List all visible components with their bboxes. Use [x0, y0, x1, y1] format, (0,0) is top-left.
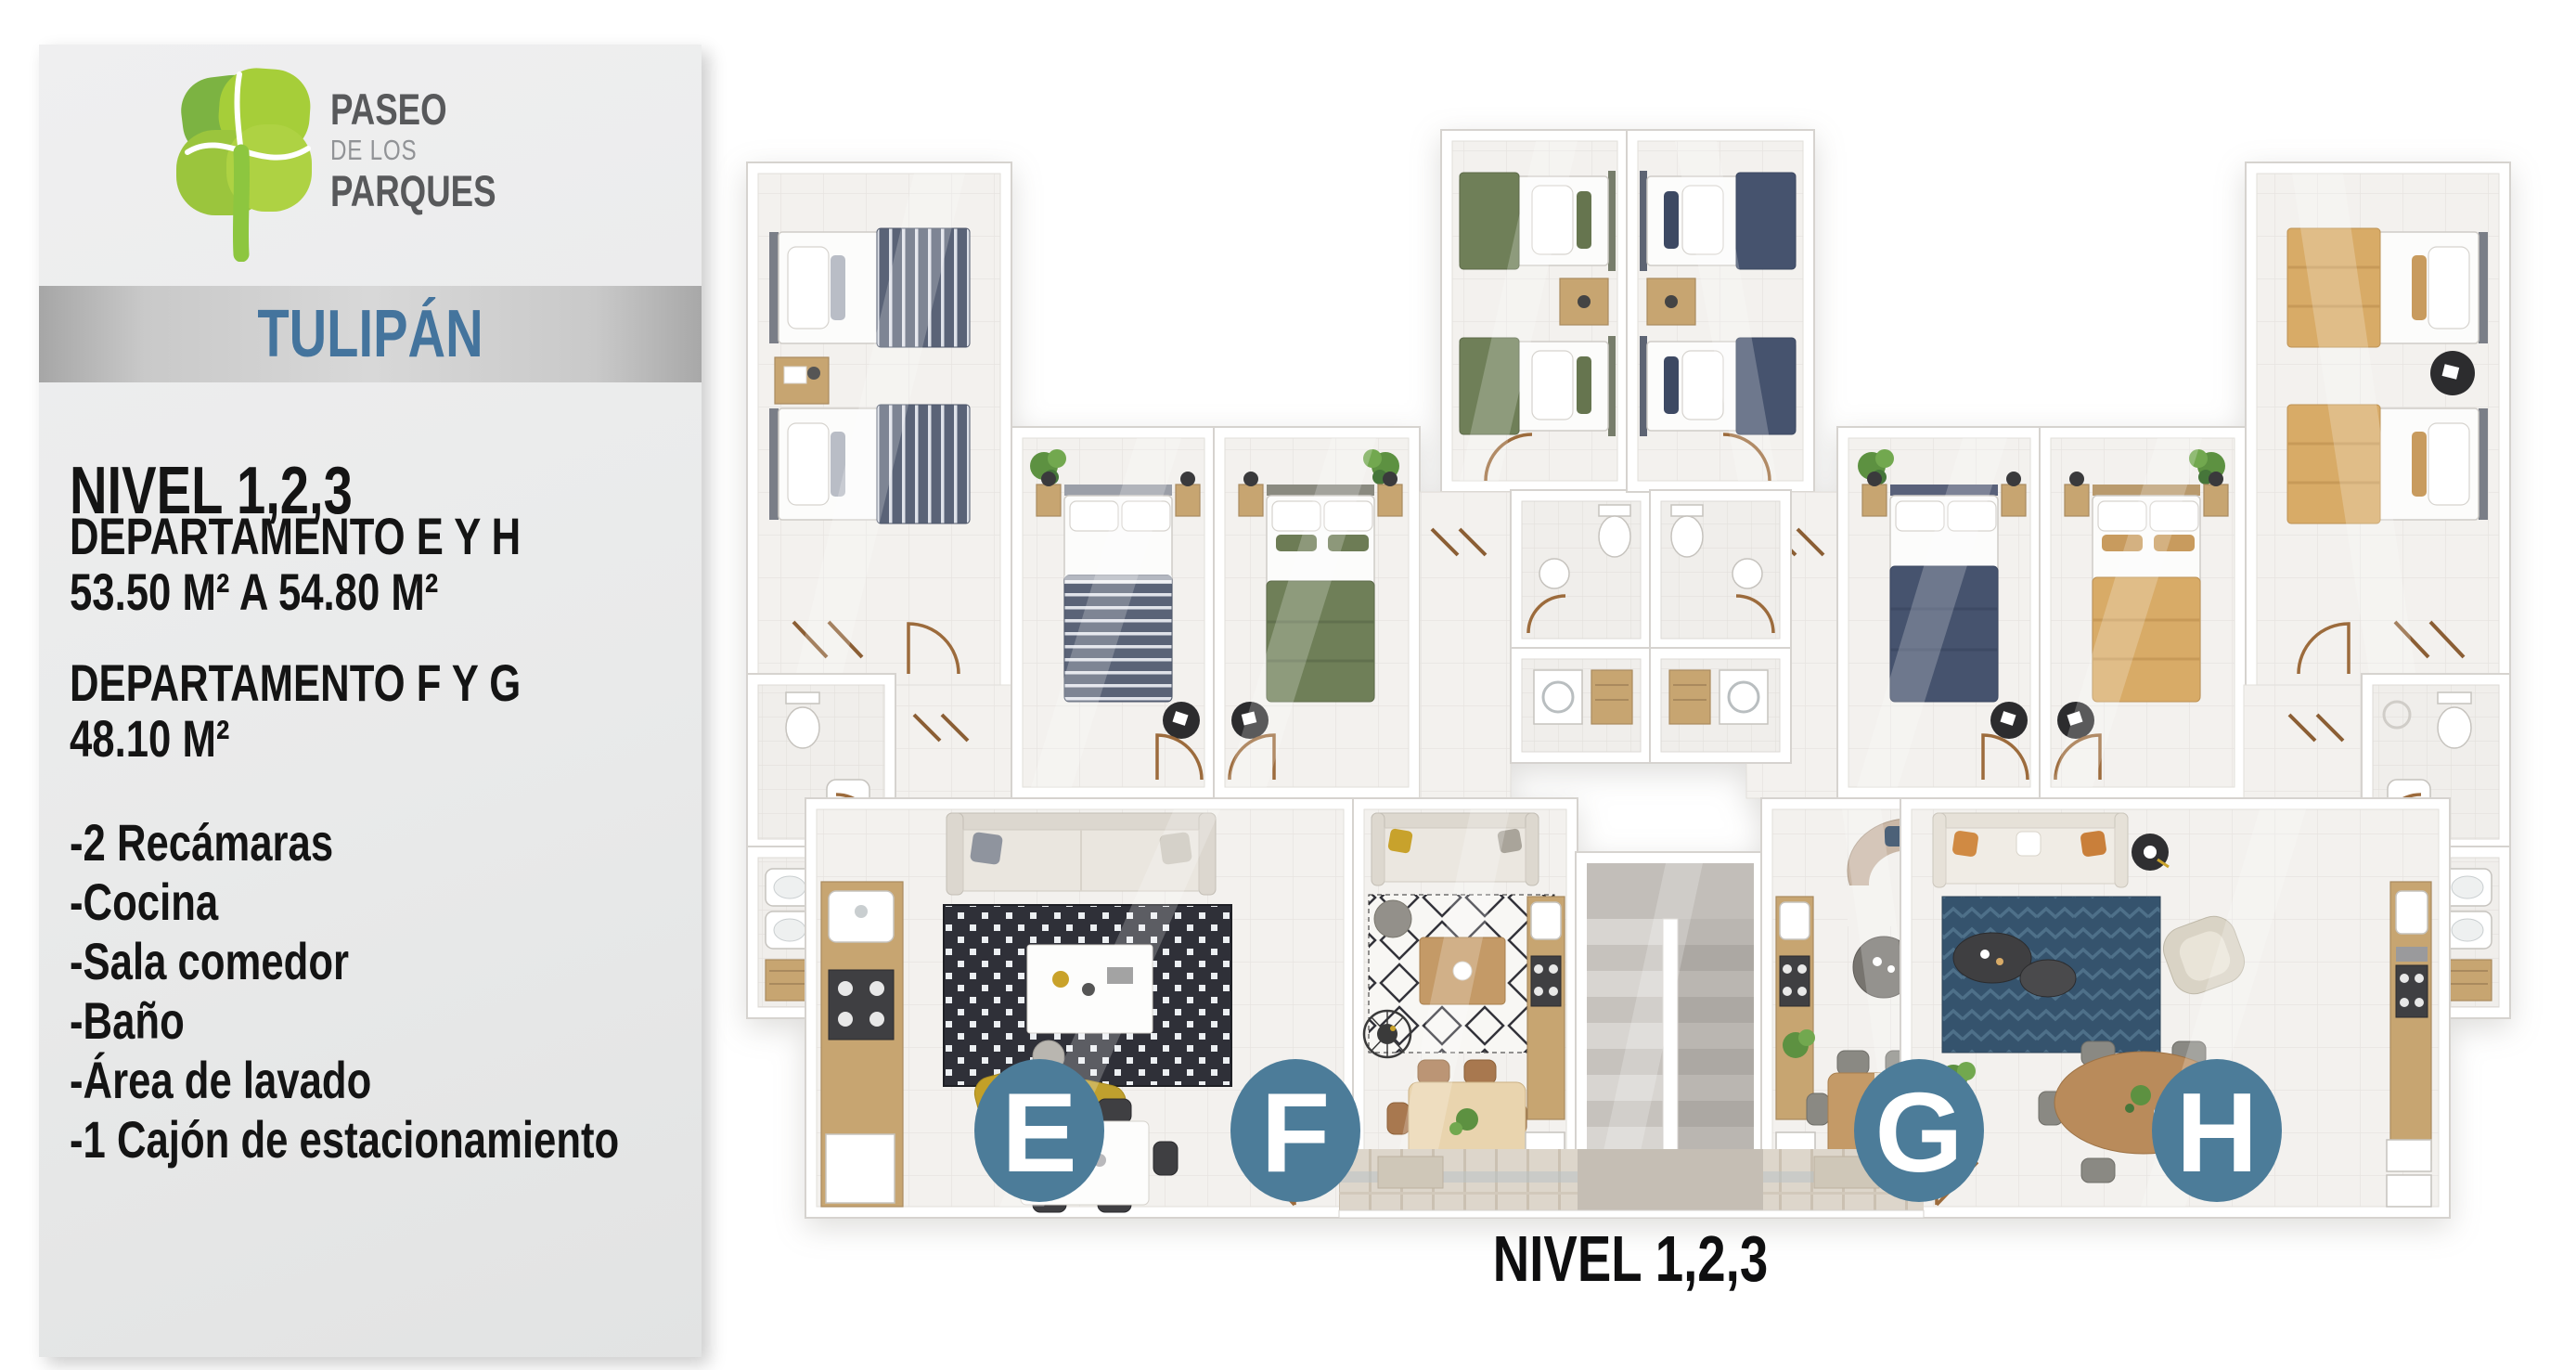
feature-item: -1 Cajón de estacionamiento [70, 1110, 774, 1170]
unit-badge-h-label: H [2176, 1069, 2258, 1196]
spec-f-g-area: 48.10 M² [70, 711, 229, 767]
unit-badge-h: H [2152, 1059, 2282, 1202]
hall-h [2244, 685, 2362, 809]
unit-badge-g-label: G [1875, 1069, 1964, 1196]
kitchen-e [821, 882, 903, 1207]
tree-icon [174, 63, 316, 262]
sofa-f [1372, 813, 1539, 885]
feature-item: -Área de lavado [70, 1051, 774, 1110]
pouf [1374, 900, 1411, 937]
brand-line3: PARQUES [330, 169, 496, 213]
brand-line1: PASEO [330, 87, 447, 131]
stair-flight-right [1678, 919, 1754, 1170]
floor-plan: E F G H [738, 65, 2519, 1221]
unit-badge-f-label: F [1261, 1069, 1331, 1196]
building-name: TULIPÁN [257, 296, 483, 372]
feature-item: -2 Recámaras [70, 813, 774, 872]
unit-badge-f: F [1230, 1059, 1360, 1202]
walkway [1339, 1149, 1924, 1218]
info-panel: PASEO DE LOS PARQUES TULIPÁN NIVEL 1,2,3… [39, 45, 702, 1357]
unit-badge-e-label: E [1001, 1069, 1076, 1196]
room-f-bathroom [1511, 490, 1652, 650]
room-g-bedroom-main [1837, 427, 2041, 798]
feature-item: -Cocina [70, 872, 774, 932]
spec-f-g: DEPARTAMENTO F Y G 48.10 M² [70, 655, 648, 767]
spec-e-h-area: 53.50 M² A 54.80 M² [70, 564, 438, 620]
hall-f [1420, 492, 1511, 798]
room-g-bathroom [1650, 490, 1791, 650]
feature-item: -Baño [70, 991, 774, 1051]
spec-e-h-title: DEPARTAMENTO E Y H [70, 509, 521, 564]
kitchen-h [2387, 882, 2431, 1207]
room-e-bedroom-main [1011, 427, 1216, 798]
room-h-bedroom-main [2040, 427, 2246, 798]
brand-logo: PASEO DE LOS PARQUES [174, 63, 543, 262]
building-name-bar: TULIPÁN [39, 286, 702, 382]
coffee-table-h [2020, 960, 2076, 997]
coffee-table-h [1953, 933, 2031, 983]
apartment-specs: DEPARTAMENTO E Y H 53.50 M² A 54.80 M² D… [70, 509, 648, 802]
unit-badge-g: G [1854, 1059, 1984, 1202]
room-f-bedroom-twin [1441, 130, 1629, 492]
room-f-laundry [1511, 648, 1652, 763]
feature-item: -Sala comedor [70, 932, 774, 991]
hall-e [895, 685, 1013, 809]
brand-wordmark: PASEO DE LOS PARQUES [330, 87, 543, 213]
room-e-bedroom-twin [747, 162, 1011, 696]
spec-e-h: DEPARTAMENTO E Y H 53.50 M² A 54.80 M² [70, 509, 648, 620]
unit-badge-e: E [974, 1059, 1104, 1202]
plan-caption: NIVEL 1,2,3 [1408, 1221, 1853, 1296]
room-g-laundry [1650, 648, 1791, 763]
room-h-bedroom-twin [2246, 162, 2510, 696]
floor-plan-svg: E F G H [738, 65, 2519, 1221]
brand-line2: DE LOS [330, 136, 417, 164]
room-f-bedroom-main [1214, 427, 1420, 798]
room-g-bedroom-twin [1627, 130, 1814, 492]
spec-f-g-title: DEPARTAMENTO F Y G [70, 655, 521, 711]
sofa-h [1933, 813, 2128, 887]
feature-list: -2 Recámaras -Cocina -Sala comedor -Baño… [70, 813, 774, 1170]
kitchen-f [1526, 897, 1565, 1190]
